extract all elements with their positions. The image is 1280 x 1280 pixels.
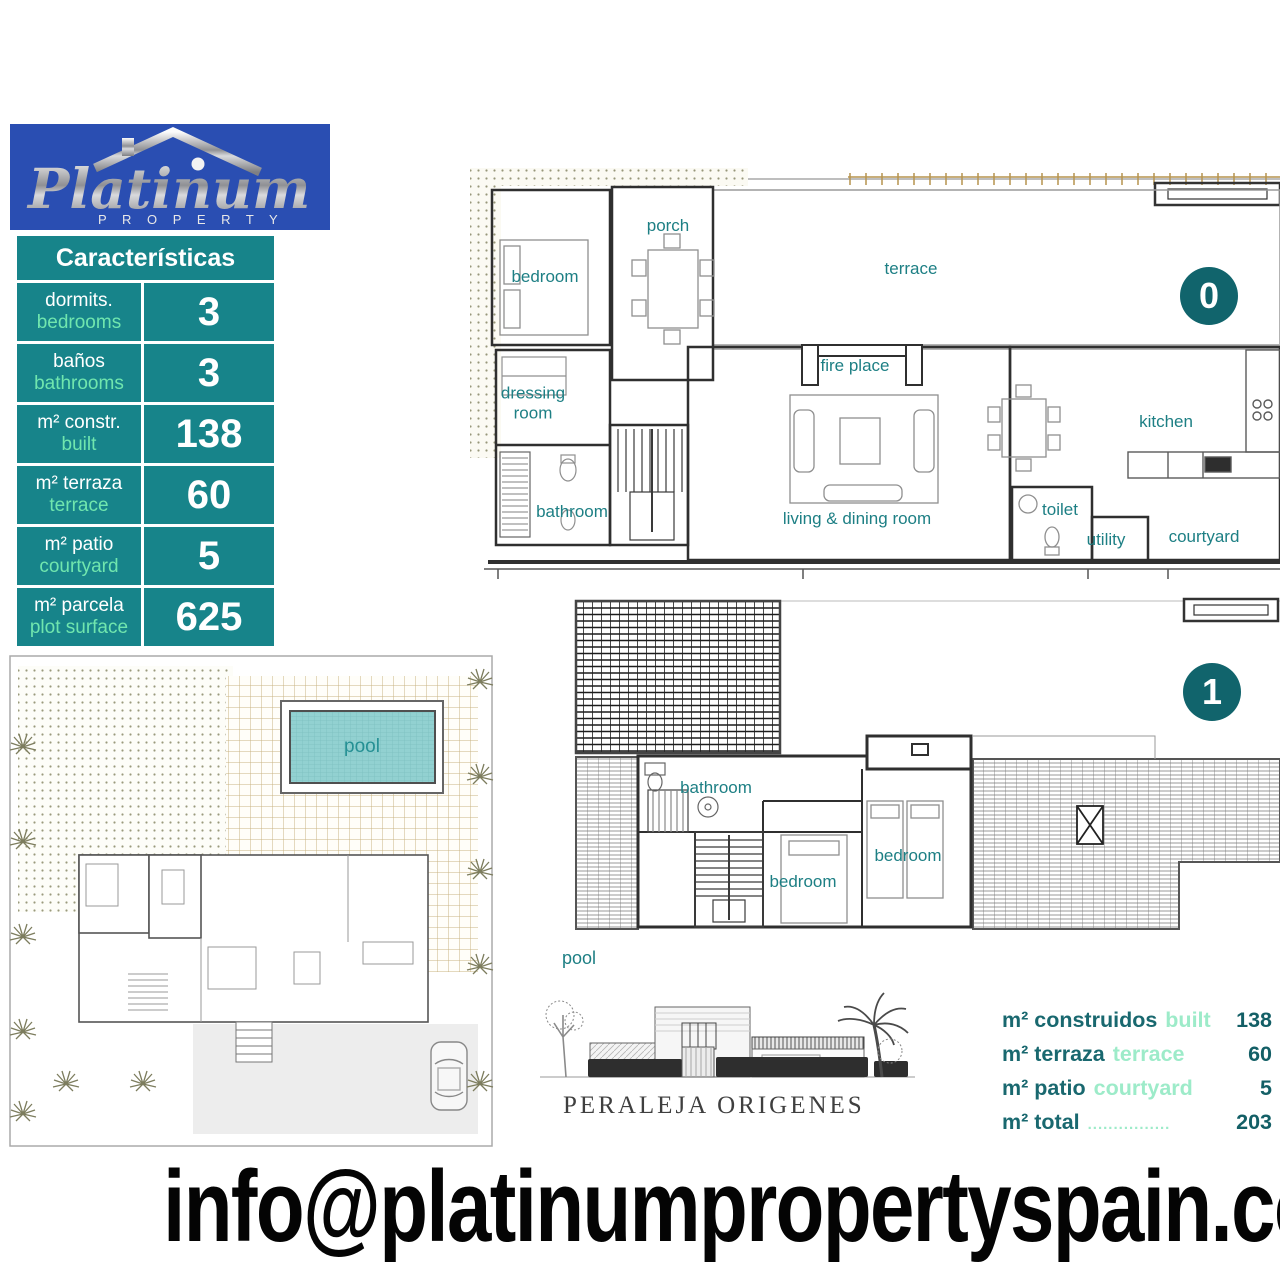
car-icon — [431, 1042, 467, 1110]
room-label-utility: utility — [1087, 530, 1126, 550]
hedge-sketch — [588, 1057, 908, 1077]
platinum-property-logo: Platinum P R O P E R T Y — [10, 120, 330, 230]
window-symbol — [1184, 599, 1278, 621]
table-row-plot-surface: m² parcelaplot surface 625 — [16, 587, 276, 648]
row-label-en: built — [17, 434, 141, 456]
row-value: 5 — [142, 526, 275, 587]
project-name-caption: PERALEJA ORIGENES — [563, 1092, 865, 1120]
table-title: Características — [16, 235, 276, 282]
property-flyer: { "logo": { "brand": "Platinum", "sub": … — [0, 0, 1280, 1280]
row-label-es: m² patio — [17, 534, 141, 556]
row-value: 3 — [142, 282, 275, 343]
summary-value: 60 — [1248, 1042, 1272, 1067]
row-label-en: plot surface — [17, 617, 141, 639]
summary-label-en: terrace — [1113, 1042, 1185, 1067]
entry-steps — [236, 1022, 272, 1062]
garden-dotted-strip — [470, 168, 748, 186]
summary-value: 203 — [1236, 1110, 1272, 1135]
room-label-bedroom: bedroom — [769, 872, 836, 892]
row-label-es: dormits. — [17, 290, 141, 312]
summary-label-es: m² terraza — [1002, 1042, 1105, 1067]
roof-hatch-right — [973, 759, 1280, 929]
room-label-terrace: terrace — [885, 259, 938, 279]
summary-value: 5 — [1260, 1076, 1272, 1101]
contact-email[interactable]: info@platinumpropertyspain.com — [163, 1150, 1280, 1265]
summary-row-total: m² total ................ 203 — [1002, 1110, 1272, 1135]
row-label-en: bedrooms — [17, 312, 141, 334]
roof-hatch-left — [576, 757, 638, 929]
room-label-bathroom: bathroom — [536, 502, 608, 522]
room-label-bathroom: bathroom — [680, 778, 752, 798]
pool-label: pool — [344, 736, 380, 758]
row-label-en: terrace — [17, 495, 141, 517]
window-symbol — [1155, 183, 1280, 205]
summary-leader-dots: ................ — [1088, 1116, 1171, 1133]
logo-sub-text: P R O P E R T Y — [98, 212, 284, 227]
summary-value: 138 — [1236, 1008, 1272, 1033]
room-label-bedroom: bedroom — [511, 267, 578, 287]
table-row-bathrooms: bañosbathrooms 3 — [16, 343, 276, 404]
table-row-courtyard: m² patiocourtyard 5 — [16, 526, 276, 587]
dining-table — [988, 385, 1060, 471]
summary-row-built: m² construidos built 138 — [1002, 1008, 1272, 1033]
pool-label: pool — [562, 948, 596, 969]
room-label-courtyard: courtyard — [1169, 527, 1240, 547]
room-label-porch: porch — [647, 216, 690, 236]
site-plan — [8, 652, 496, 1150]
area-summary: m² construidos built 138 m² terraza terr… — [1002, 1008, 1272, 1144]
table-row-terrace: m² terrazaterrace 60 — [16, 465, 276, 526]
summary-label-es: m² construidos — [1002, 1008, 1157, 1033]
row-label-en: bathrooms — [17, 373, 141, 395]
level-1-badge: 1 — [1183, 663, 1241, 721]
row-label-es: m² terraza — [17, 473, 141, 495]
table-row-built: m² constr.built 138 — [16, 404, 276, 465]
roof-hatch-dark — [576, 601, 780, 753]
room-label-bedroom: bedroom — [874, 846, 941, 866]
summary-label-en: built — [1165, 1008, 1210, 1033]
row-value: 138 — [142, 404, 275, 465]
footer: info@platinumpropertyspain.com — [0, 1150, 1280, 1265]
row-value: 60 — [142, 465, 275, 526]
row-value: 625 — [142, 587, 275, 648]
summary-label-en: courtyard — [1094, 1076, 1193, 1101]
gate-sketch — [682, 1047, 714, 1077]
row-value: 3 — [142, 343, 275, 404]
level-0-badge: 0 — [1180, 267, 1238, 325]
dining-table — [632, 234, 714, 344]
bed — [500, 240, 588, 335]
summary-label-es: m² total — [1002, 1110, 1080, 1135]
house-footprint — [79, 855, 428, 1022]
row-label-en: courtyard — [17, 556, 141, 578]
room-label-kitchen: kitchen — [1139, 412, 1193, 432]
skylight-symbol — [1077, 806, 1103, 844]
floor-plan-level-1 — [565, 595, 1280, 940]
room-label-fire-place: fire place — [821, 356, 890, 376]
staircase — [618, 429, 682, 540]
room-label-dressing-room: dressing room — [492, 383, 574, 422]
row-label-es: m² parcela — [17, 595, 141, 617]
row-label-es: baños — [17, 351, 141, 373]
tree-sketch — [546, 1001, 583, 1077]
summary-row-courtyard: m² patio courtyard 5 — [1002, 1076, 1272, 1101]
room-label-toilet: toilet — [1042, 500, 1078, 520]
summary-row-terrace: m² terraza terrace 60 — [1002, 1042, 1272, 1067]
parapet-line — [973, 736, 1155, 759]
sofa-set — [790, 395, 938, 503]
ground-line — [484, 569, 1280, 579]
table-row-bedrooms: dormits.bedrooms 3 — [16, 282, 276, 343]
room-label-living-dining: living & dining room — [783, 509, 931, 529]
summary-label-es: m² patio — [1002, 1076, 1086, 1101]
elevation-sketch — [530, 985, 920, 1090]
characteristics-table: Características dormits.bedrooms 3 baños… — [14, 233, 277, 649]
row-label-es: m² constr. — [17, 412, 141, 434]
